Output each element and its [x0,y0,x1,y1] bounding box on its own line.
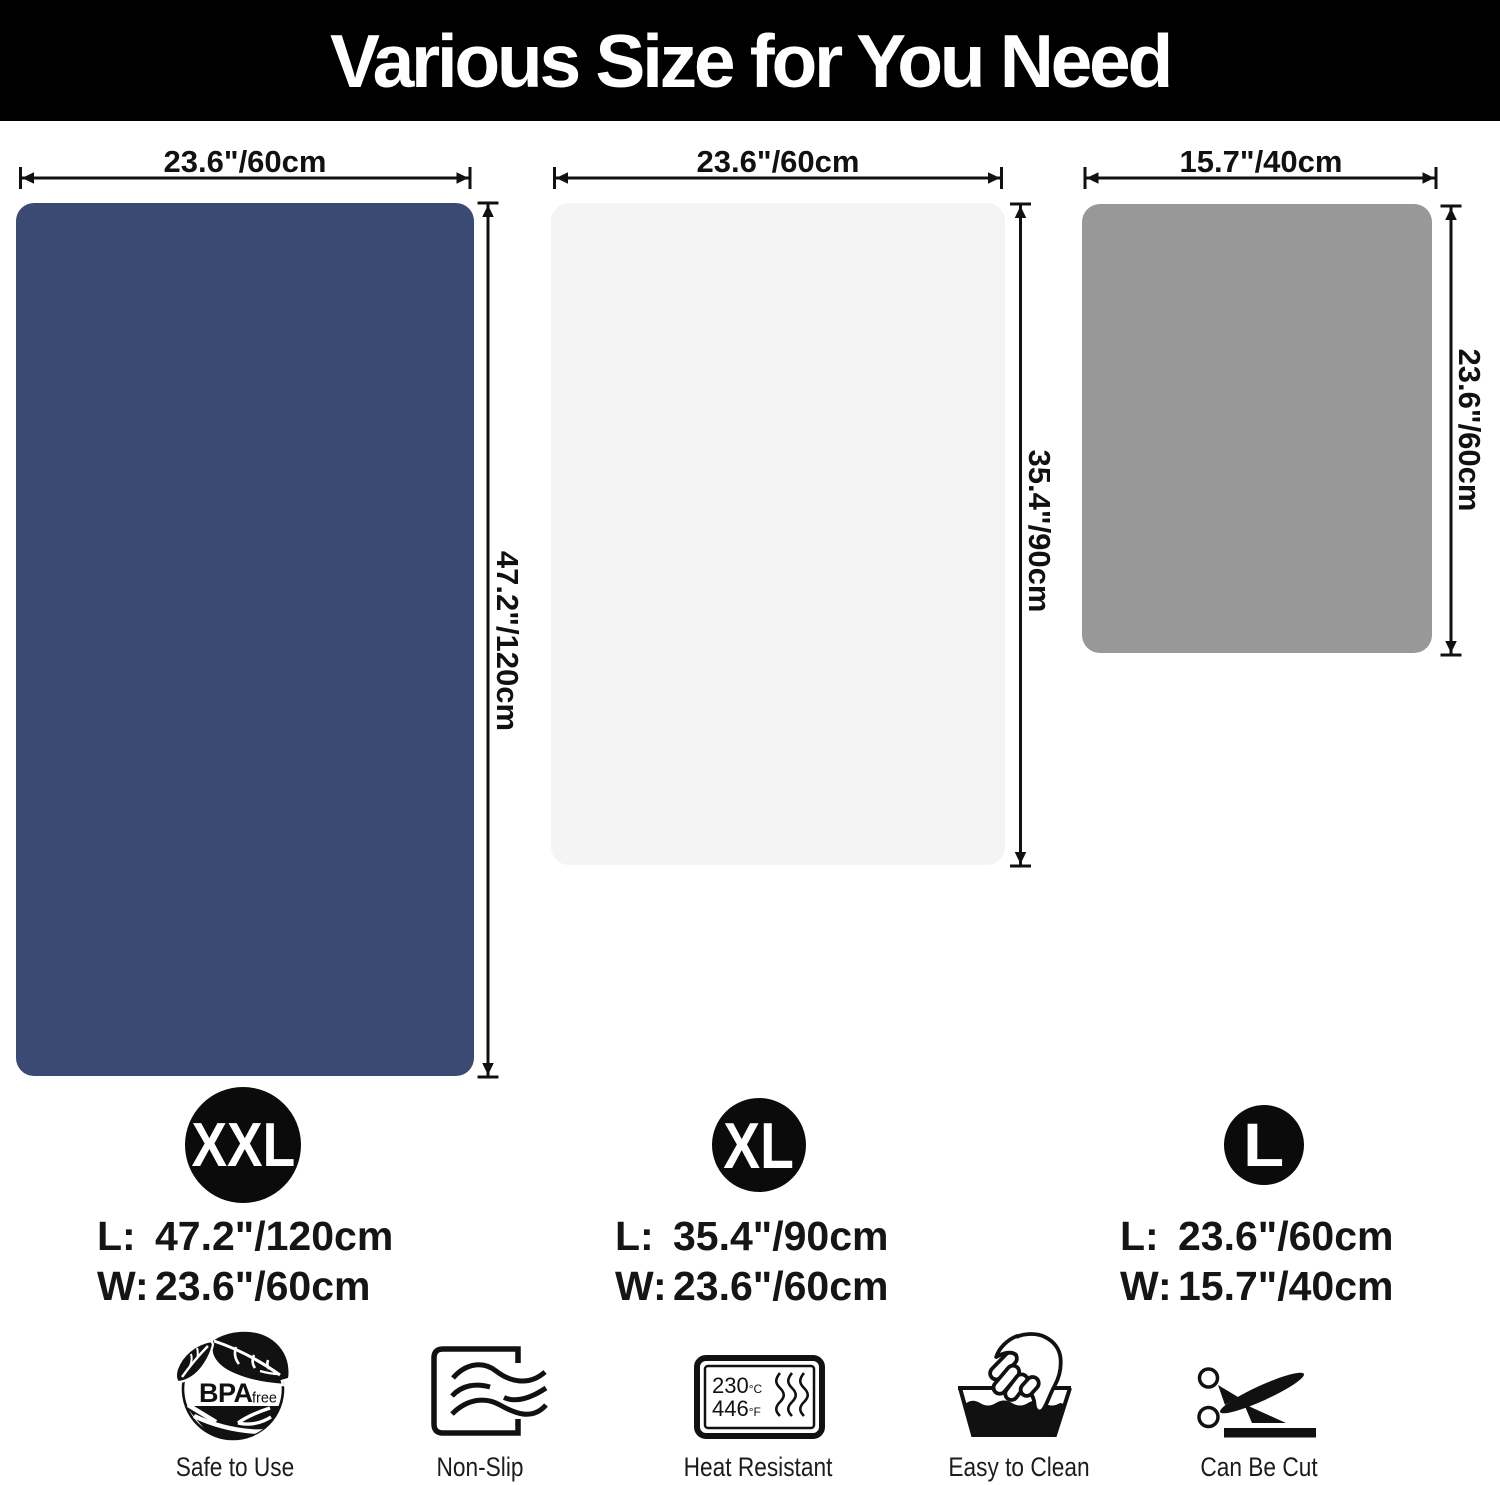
svg-text:free: free [252,1391,277,1407]
svg-text:BPA: BPA [199,1378,253,1408]
